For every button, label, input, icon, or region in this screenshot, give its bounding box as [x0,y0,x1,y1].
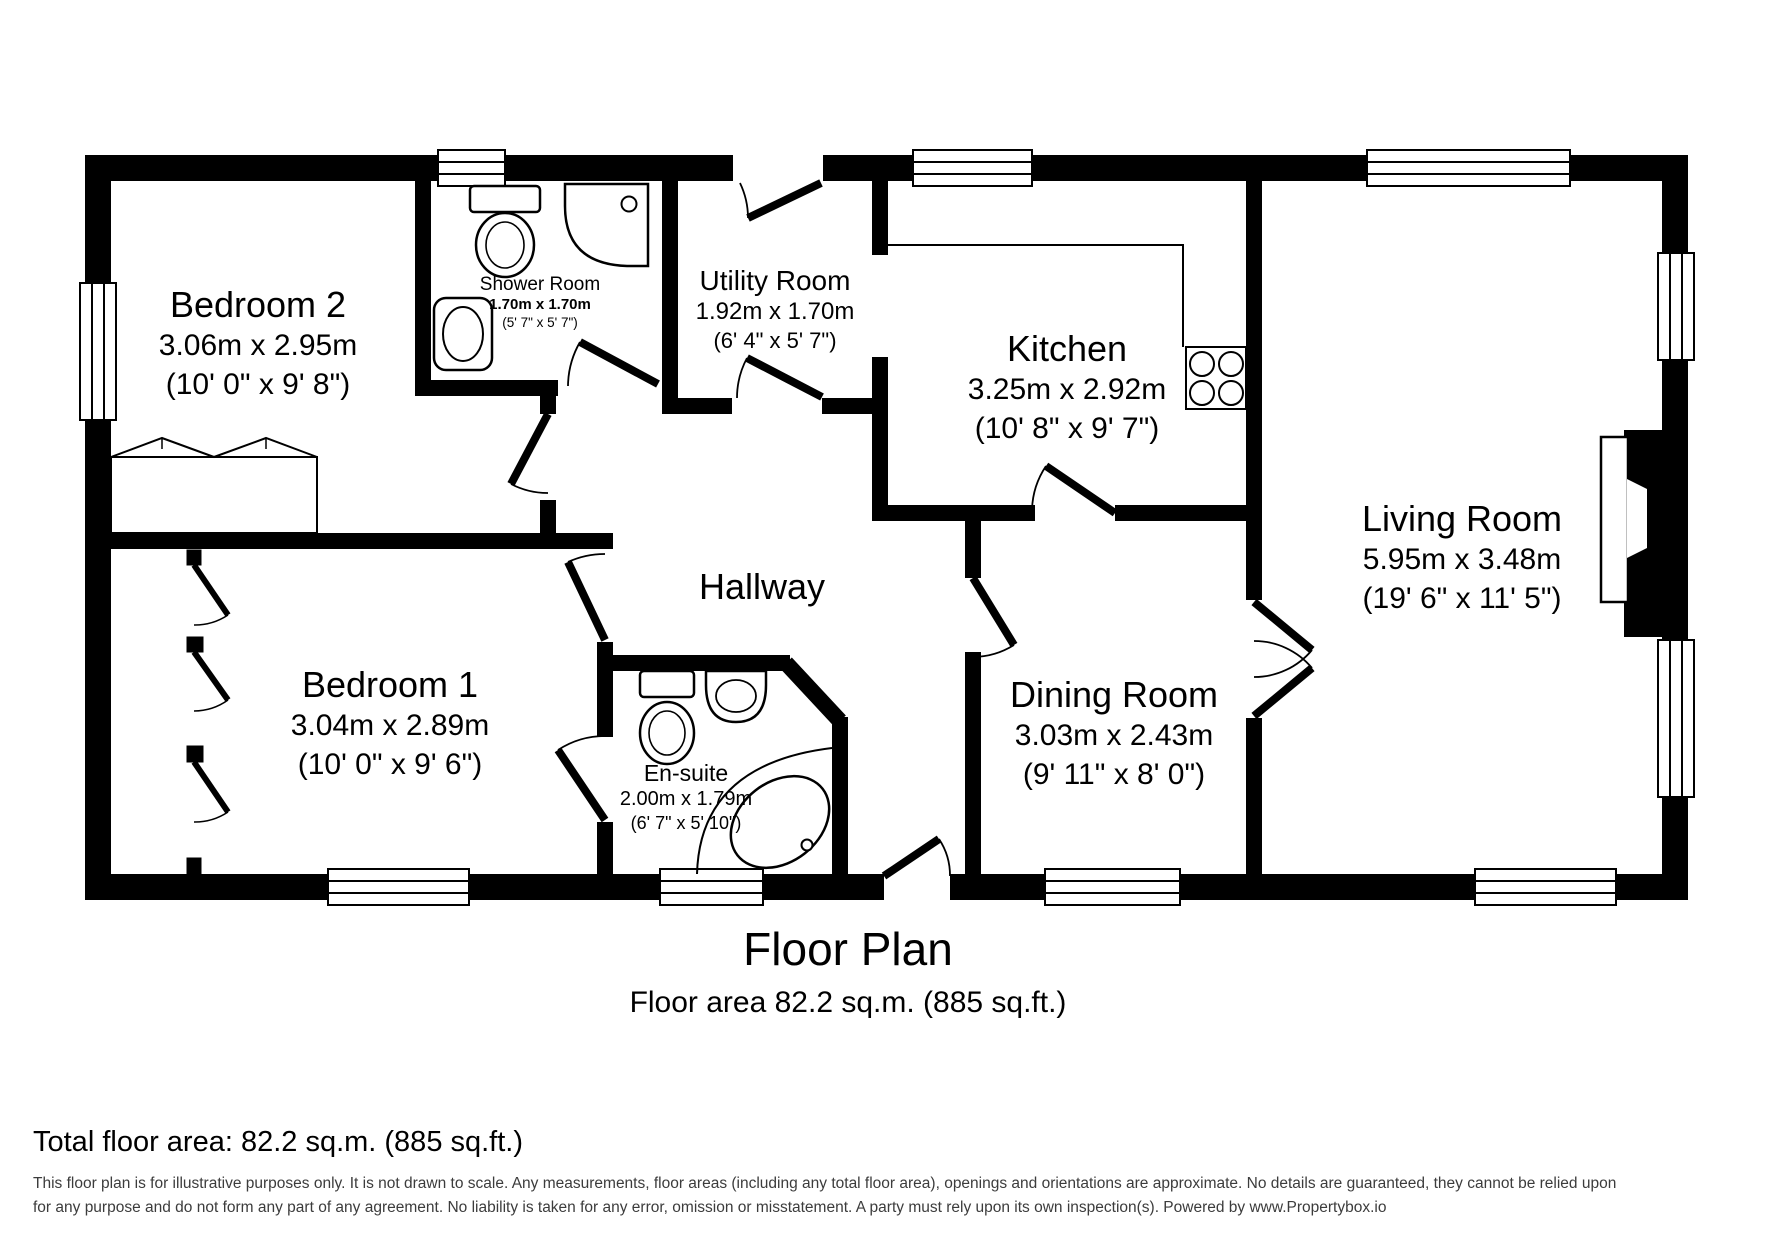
bathtub-icon [697,748,847,887]
closet-pivot-2 [187,637,203,652]
sink-icon-ensuite [706,671,766,722]
wall-bedroom1-right-lower [597,822,613,874]
closet-arc-3 [194,812,228,822]
doors [511,183,1312,876]
wall-ensuite-diagonal [786,663,840,721]
window-ensuite-bottom [660,869,763,905]
shower-tray-icon [565,184,648,266]
exterior-walls [85,155,1688,900]
wall-utility-bottom-left [662,398,732,414]
window-living-right-lower [1658,640,1694,797]
floor-plan-svg [0,0,1771,1239]
fireplace [1601,430,1688,637]
door-ensuite [558,736,605,820]
closet-pivot-4 [187,858,201,874]
wall-bedroom2-door-top-stub [540,396,556,414]
toilet-icon-ensuite [640,671,694,764]
window-living-top [1367,150,1570,186]
window-dining-bottom [1045,869,1180,905]
closet-leaf-2 [194,652,228,700]
wall-kitchen-bottom-left [872,505,1035,521]
closet-pivot-1 [187,550,201,565]
wall-utility-kitchen-lower [872,357,888,505]
toilet-icon-shower-room [470,186,540,277]
kitchen-counter [888,245,1183,347]
window-kitchen-top [913,150,1032,186]
wall-ensuite-top [613,655,790,671]
bedroom2-wardrobe [111,438,317,533]
fireplace-opening [1627,479,1647,558]
wall-kitchen-living [1246,181,1262,600]
door-utility-hallway [737,358,822,398]
wall-bedroom1-right-upper [597,642,613,737]
window-bedroom2-left [80,283,116,420]
wall-dining-living [1246,718,1262,874]
closet-arc-1 [194,615,228,625]
wall-utility-left [662,181,678,413]
wardrobe-body [111,457,317,533]
door-bedroom2 [511,414,548,493]
disclaimer-line-2: for any purpose and do not form any part… [33,1196,1757,1220]
door-kitchen [1032,466,1115,513]
wall-dining-left-upper [965,505,981,578]
door-front-entrance [884,839,950,876]
disclaimer-line-1: This floor plan is for illustrative purp… [33,1172,1757,1196]
wall-bedroom2-door-bottom-stub [540,500,556,533]
door-bedroom1 [568,554,605,640]
closet-pivot-3 [187,746,203,762]
plan-subtitle: Floor area 82.2 sq.m. (885 sq.ft.) [623,983,1073,1024]
title-block: Floor Plan Floor area 82.2 sq.m. (885 sq… [623,922,1073,1024]
closet-leaf-3 [194,762,228,812]
wardrobe-bifold-doors [111,438,317,457]
sink-icon-shower-room [434,298,492,370]
wall-bottom-left-segment [85,874,884,900]
fireplace-front-panel [1601,437,1628,602]
plan-title: Floor Plan [623,922,1073,977]
wall-utility-kitchen-upper [872,181,888,255]
door-living-french-bottom [1254,641,1312,716]
door-shower-room [568,342,658,386]
wall-bedroom-divider [111,533,613,549]
total-floor-area: Total floor area: 82.2 sq.m. (885 sq.ft.… [33,1126,523,1159]
window-living-bottom [1475,869,1616,905]
wall-kitchen-bottom-right [1115,505,1262,521]
floor-plan-page: { "plan": { "title": "Floor Plan", "subt… [0,0,1771,1239]
windows [80,150,1694,905]
door-living-french-top [1254,602,1312,677]
wall-left [85,155,111,900]
wall-dining-left-lower [965,652,981,874]
closet-leaf-1 [194,565,228,615]
closet-arc-2 [194,700,228,711]
window-shower-top [438,150,505,186]
door-utility-external [740,183,821,218]
bedroom1-closet [187,550,228,874]
wall-top-left-segment [85,155,733,181]
kitchen-fixtures [888,245,1246,409]
wall-shower-bottom [415,380,558,396]
window-living-right-upper [1658,253,1694,360]
wall-ensuite-right [832,717,848,874]
disclaimer-text: This floor plan is for illustrative purp… [33,1172,1757,1220]
wall-bedroom2-shower [415,181,431,396]
window-bedroom1-bottom [328,869,469,905]
shower-room-fixtures [434,184,648,370]
door-dining [973,578,1014,657]
hob-icon [1186,347,1246,409]
